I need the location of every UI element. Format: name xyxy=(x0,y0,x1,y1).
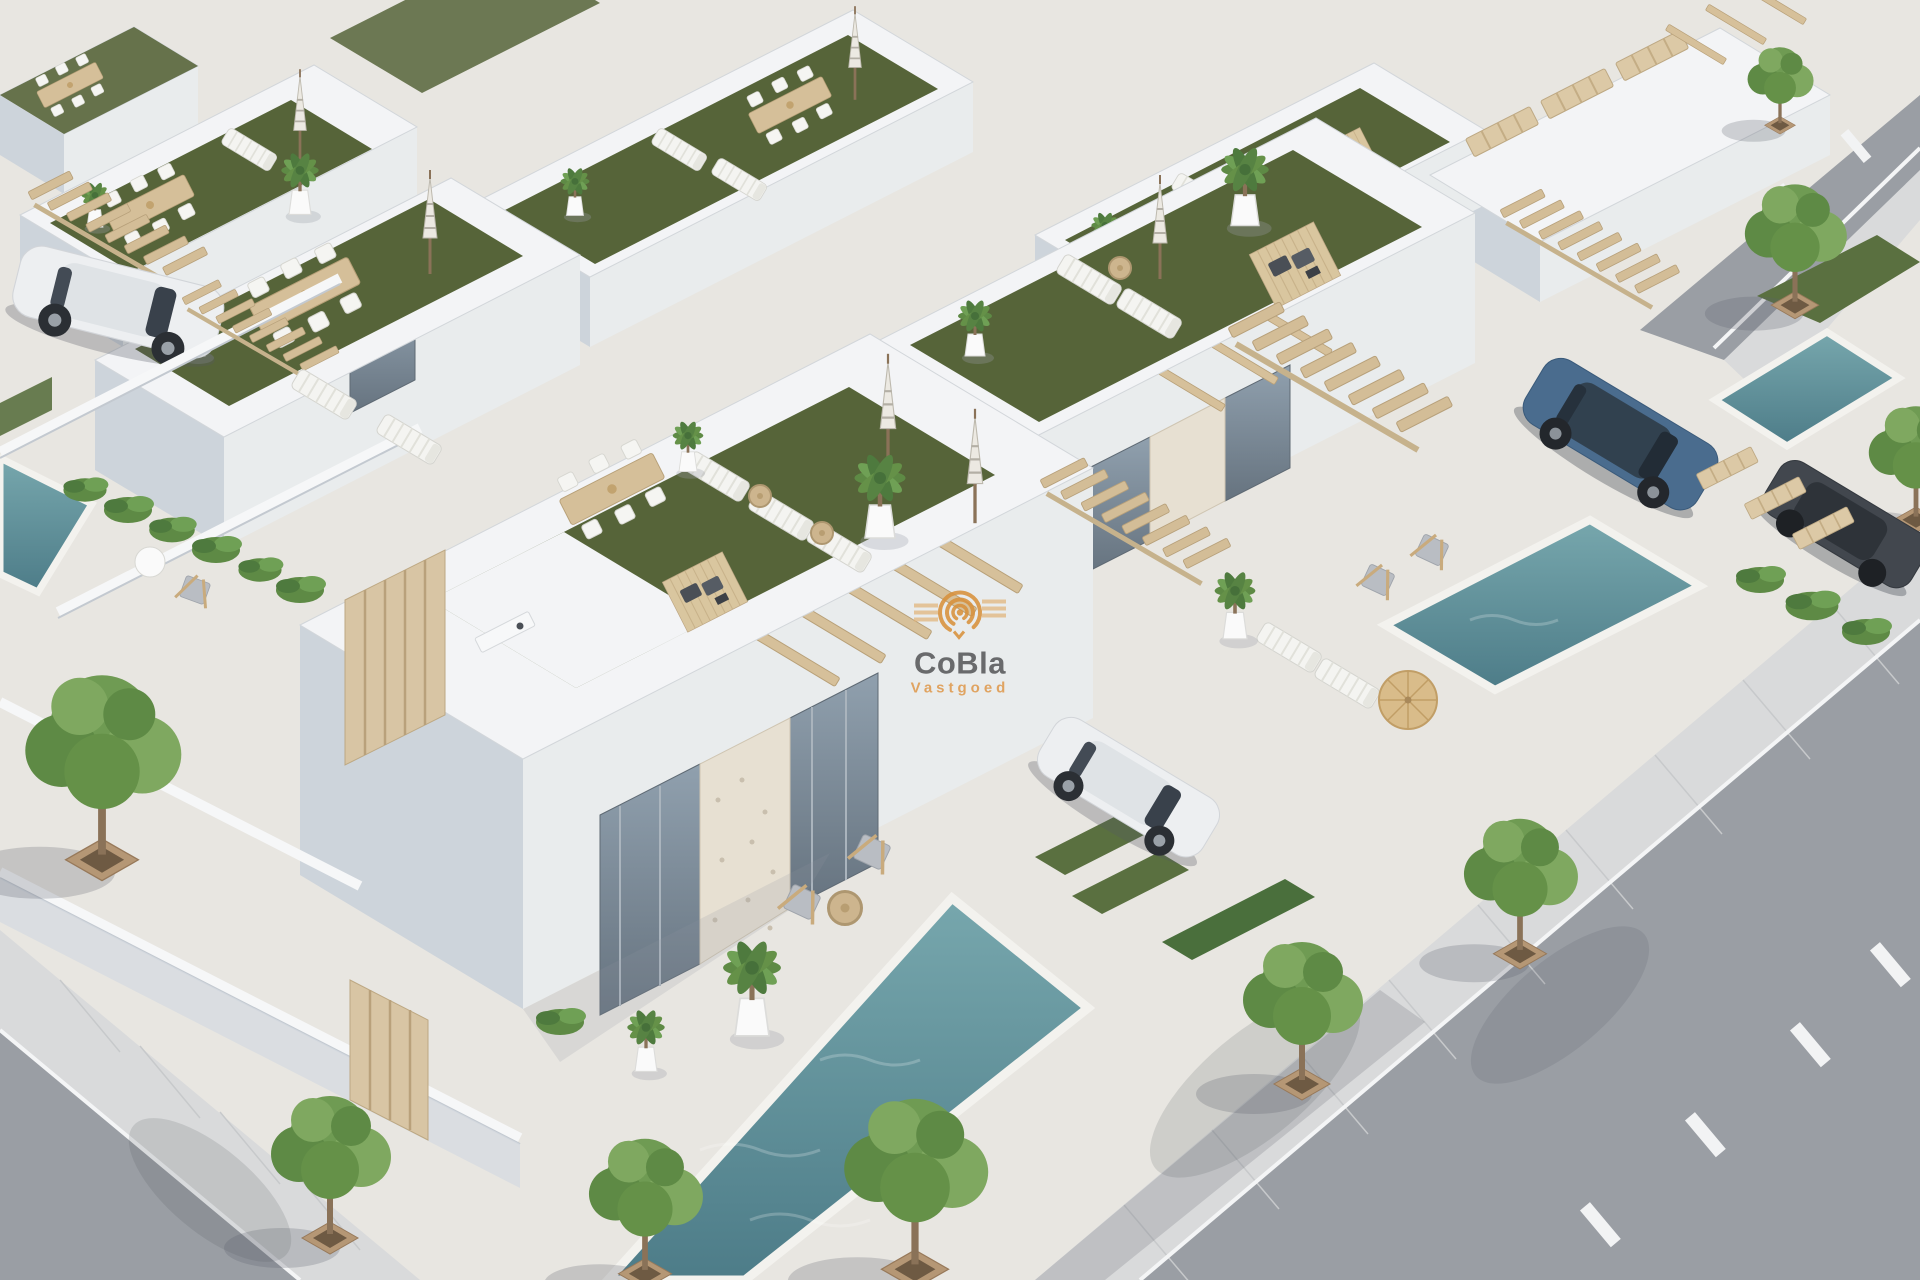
render-scene xyxy=(0,0,1920,1280)
roof-sink xyxy=(517,623,524,630)
straw-parasol xyxy=(1379,671,1437,729)
side-table xyxy=(1109,257,1131,279)
round-table xyxy=(135,547,165,577)
side-table xyxy=(829,892,862,925)
side-table xyxy=(749,485,771,507)
side-table xyxy=(811,522,833,544)
